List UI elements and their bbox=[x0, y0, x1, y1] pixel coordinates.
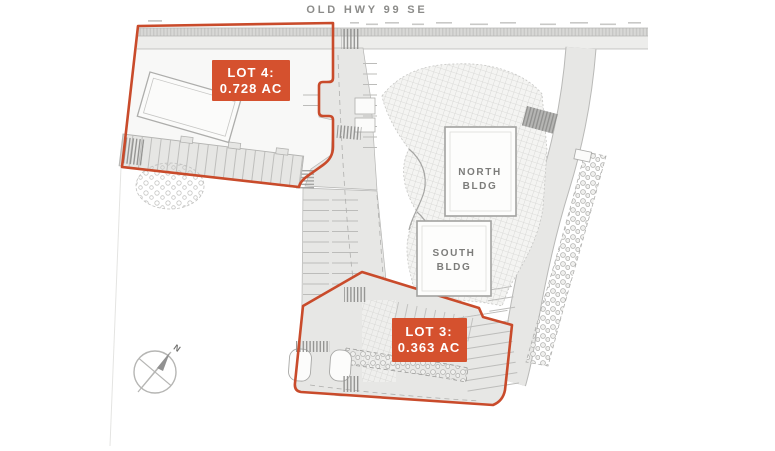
south-building-label-line1: SOUTH bbox=[433, 248, 476, 259]
lot3-area: 0.363 AC bbox=[398, 340, 460, 355]
lot3-name: LOT 3: bbox=[405, 324, 452, 339]
road-name-label: OLD HWY 99 SE bbox=[306, 4, 427, 16]
site-plan-drawing: NORTH BLDG SOUTH BLDG LOT 4: 0.728 AC LO… bbox=[0, 0, 775, 451]
lot3-label: LOT 3: 0.363 AC bbox=[392, 318, 467, 362]
highway-road bbox=[137, 28, 648, 49]
site-plan: NORTH BLDG SOUTH BLDG LOT 4: 0.728 AC LO… bbox=[0, 0, 775, 451]
lot4-area: 0.728 AC bbox=[220, 81, 282, 96]
lot4-name: LOT 4: bbox=[227, 65, 274, 80]
south-building: SOUTH BLDG bbox=[417, 221, 491, 296]
parcel-west-boundary bbox=[110, 167, 121, 446]
parking-ticks-west-pocket bbox=[303, 86, 318, 114]
lot4-label: LOT 4: 0.728 AC bbox=[212, 60, 290, 101]
north-building-label-line1: NORTH bbox=[458, 167, 502, 178]
compass-needle bbox=[157, 352, 170, 371]
north-building: NORTH BLDG bbox=[445, 127, 516, 216]
compass-rose: N bbox=[134, 342, 182, 393]
crosswalk-highway bbox=[341, 29, 359, 49]
compass-north-label: N bbox=[172, 342, 183, 354]
south-building-label-line2: BLDG bbox=[437, 262, 472, 273]
north-building-label-line2: BLDG bbox=[463, 181, 498, 192]
